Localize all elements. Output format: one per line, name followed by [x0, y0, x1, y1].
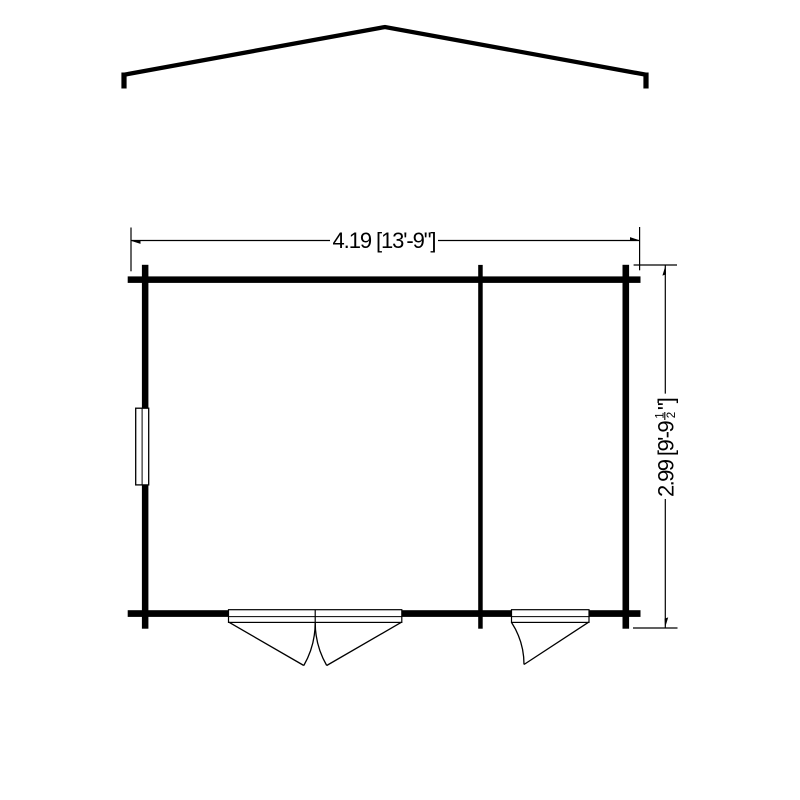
svg-text:2: 2 [666, 412, 678, 418]
svg-text:"]: "] [653, 398, 678, 410]
svg-text:2.99 [9'-9: 2.99 [9'-9 [653, 421, 678, 497]
svg-text:4.19 [13'-9"]: 4.19 [13'-9"] [333, 228, 436, 253]
